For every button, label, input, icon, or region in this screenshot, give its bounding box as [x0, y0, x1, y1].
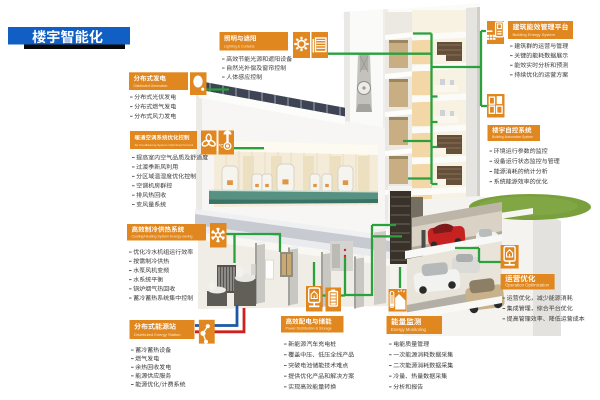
- svg-text:Air Conditioning System Optimi: Air Conditioning System Optimized Contro…: [135, 143, 194, 147]
- svg-text:Operation Optimization: Operation Optimization: [505, 282, 550, 287]
- svg-text:Distributed Energy Station: Distributed Energy Station: [134, 332, 180, 337]
- svg-text:Cooling/Heating System Energy-: Cooling/Heating System Energy-saving: [132, 234, 193, 238]
- svg-text:Building Automation System: Building Automation System: [492, 135, 533, 139]
- svg-text:Power Distribution & Storage: Power Distribution & Storage: [286, 326, 332, 330]
- svg-text:Lighting & Curtains: Lighting & Curtains: [224, 44, 255, 48]
- svg-text:Energy Monitoring: Energy Monitoring: [391, 327, 426, 332]
- svg-text:Building Energy System: Building Energy System: [513, 32, 556, 37]
- svg-text:Distributed Generation: Distributed Generation: [134, 84, 168, 88]
